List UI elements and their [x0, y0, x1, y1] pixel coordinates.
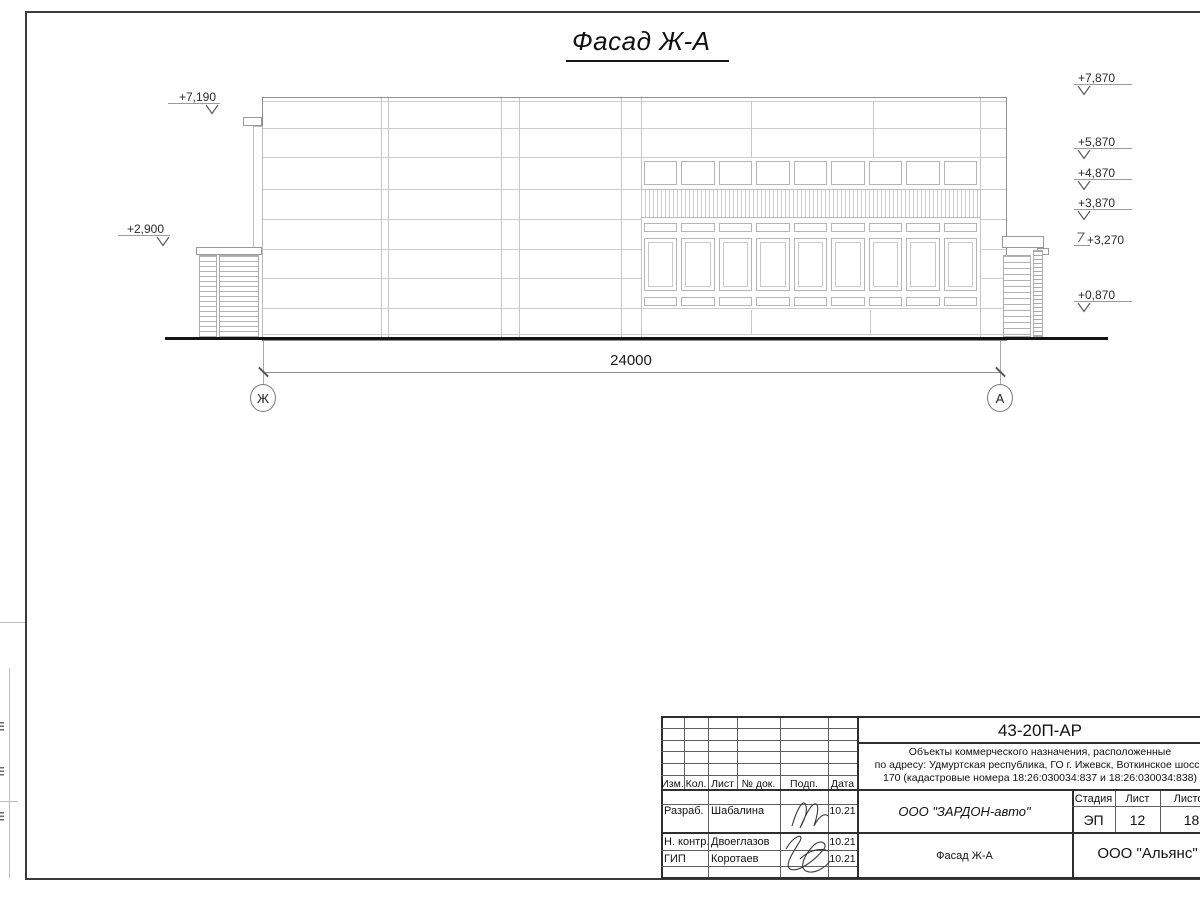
left-canopy: [243, 117, 262, 126]
line: [263, 249, 641, 250]
window-pane: [869, 238, 902, 291]
line: [263, 189, 641, 190]
tb-design-org: ООО "Альянс": [1072, 845, 1200, 862]
elevation-arrow-icon: [1077, 85, 1091, 96]
elevation-arrow-icon: [1077, 302, 1091, 313]
tb-signer-name: Коротаев: [711, 853, 759, 865]
elevation-underline: [1074, 245, 1090, 246]
line: [980, 249, 1006, 250]
window-pane: [719, 223, 752, 232]
window-pane: [719, 297, 752, 306]
line: [661, 740, 857, 741]
window-pane: [756, 161, 789, 185]
window-pane: [794, 161, 827, 185]
tb-signer-name: Шабалина: [711, 805, 764, 817]
line: [263, 219, 641, 220]
window-pane: [756, 238, 789, 291]
line: [661, 877, 1200, 879]
elevation-mark: +3,270: [1087, 233, 1124, 247]
tb-col-docnum: № док.: [737, 778, 780, 790]
window-pane: [831, 223, 864, 232]
tb-sheet-name: Фасад Ж-А: [857, 850, 1072, 862]
line: [661, 832, 1200, 834]
elevation-arrow-icon: [1077, 210, 1091, 221]
sheet-frame-left: [25, 11, 27, 880]
tb-sheets-header: Листов: [1160, 793, 1200, 805]
window-pane: [906, 223, 939, 232]
line: [519, 98, 520, 340]
margin-text-mark: [0, 812, 4, 821]
signature: [780, 831, 834, 877]
line: [980, 189, 1006, 190]
window-pane: [681, 297, 714, 306]
line: [661, 728, 857, 729]
tb-signer-role: Разраб.: [664, 805, 704, 817]
tb-signer-date: 10.21: [828, 805, 857, 817]
line: [857, 742, 1200, 744]
elevation-mark: +4,870: [1078, 166, 1115, 180]
tb-client-org: ООО "ЗАРДОН-авто": [857, 804, 1072, 819]
line: [980, 219, 1006, 220]
window-pane: [869, 223, 902, 232]
window-pane: [831, 297, 864, 306]
line: [661, 775, 857, 776]
curtain-wall-glazing: [641, 98, 980, 340]
line: [708, 717, 709, 878]
line: [980, 98, 981, 340]
left-louver-slats-narrow: [199, 255, 217, 337]
window-pane: [719, 238, 752, 291]
tb-sheet-header: Лист: [1115, 793, 1160, 805]
elevation-arrow-icon: [1077, 149, 1091, 160]
window-pane: [944, 297, 977, 306]
louver-band: [641, 189, 980, 218]
extension-line-left: [263, 341, 264, 385]
elevation-mark: +5,870: [1078, 135, 1115, 149]
ground-line: [165, 337, 1108, 340]
sheet-frame-top: [25, 11, 1200, 13]
tb-description-line3: 170 (кадастровые номера 18:26:030034:837…: [857, 772, 1200, 784]
window-row-upper: [641, 159, 980, 187]
tb-signer-role: ГИП: [664, 853, 686, 865]
elevation-arrow-icon: [156, 236, 170, 247]
tb-stage-header: Стадия: [1072, 793, 1115, 805]
line: [661, 751, 857, 752]
left-louver-cap: [196, 247, 262, 255]
window-pane: [794, 223, 827, 232]
line: [661, 763, 857, 764]
axis-bubble-left: Ж: [250, 384, 276, 412]
window-pane: [681, 223, 714, 232]
window-pane: [944, 238, 977, 291]
tb-sheets-value: 18: [1160, 812, 1200, 828]
tb-signer-name: Двоеглазов: [711, 836, 769, 848]
tb-sheet-value: 12: [1115, 812, 1160, 828]
line: [501, 98, 502, 340]
axis-label: Ж: [257, 391, 269, 406]
window-row-transom-top: [641, 221, 980, 234]
tb-signer-role: Н. контр.: [664, 836, 709, 848]
elevation-mark: +2,900: [114, 222, 164, 236]
window-pane: [869, 297, 902, 306]
right-louver-cap: [1002, 236, 1044, 248]
line: [661, 716, 1200, 718]
dimension-label: 24000: [560, 352, 702, 369]
window-pane: [906, 297, 939, 306]
window-pane: [644, 161, 677, 185]
margin-text-mark: [0, 722, 4, 731]
window-pane: [756, 223, 789, 232]
window-pane: [794, 297, 827, 306]
window-pane: [906, 161, 939, 185]
tb-description-line2: по адресу: Удмуртская республика, ГО г. …: [857, 759, 1200, 771]
view-title: Фасад Ж-А: [566, 26, 729, 62]
window-pane: [719, 161, 752, 185]
elevation-arrow-icon: [205, 104, 219, 115]
left-louver-slats-wide: [219, 255, 259, 337]
axis-bubble-right: А: [987, 384, 1013, 412]
signature: [788, 794, 830, 834]
extension-line-right: [1000, 341, 1001, 385]
window-pane: [644, 223, 677, 232]
margin-divider: [0, 801, 18, 802]
tb-col-podp: Подп.: [780, 778, 828, 790]
right-louver-ladder: [1033, 250, 1043, 337]
window-pane: [831, 161, 864, 185]
elevation-mark: +7,870: [1078, 71, 1115, 85]
window-pane: [644, 297, 677, 306]
window-pane: [794, 238, 827, 291]
tb-col-kol: Кол.: [684, 778, 708, 790]
tb-col-date: Дата: [828, 778, 857, 790]
tb-col-izm: Изм.: [661, 778, 684, 790]
tb-description-line1: Объекты коммерческого назначения, распол…: [857, 746, 1200, 758]
line: [381, 98, 382, 340]
window-pane: [906, 238, 939, 291]
window-pane: [944, 161, 977, 185]
window-row-main: [641, 236, 980, 293]
window-row-transom-bottom: [641, 295, 980, 308]
line: [1072, 806, 1200, 807]
dimension-line: [263, 372, 1000, 373]
margin-text-mark: [0, 767, 4, 776]
elevation-mark: +0,870: [1078, 288, 1115, 302]
line: [661, 717, 663, 878]
window-pane: [681, 238, 714, 291]
margin-divider: [0, 622, 25, 623]
drawing-sheet: { "sheet": { "view_title": "Фасад Ж-А", …: [0, 0, 1200, 900]
window-pane: [869, 161, 902, 185]
tb-stage-value: ЭП: [1072, 812, 1115, 828]
margin-column-line: [9, 668, 10, 878]
tb-document-code: 43-20П-АР: [857, 721, 1200, 741]
elevation-mark: +3,870: [1078, 196, 1115, 210]
axis-label: А: [996, 391, 1005, 406]
tb-col-list: Лист: [708, 778, 737, 790]
line: [388, 98, 389, 340]
window-pane: [644, 238, 677, 291]
right-louver-slats: [1003, 255, 1031, 337]
line: [621, 98, 622, 340]
elevation-arrow-icon: [1077, 180, 1091, 191]
building-facade: [262, 97, 1007, 341]
window-pane: [681, 161, 714, 185]
window-pane: [831, 238, 864, 291]
window-pane: [944, 223, 977, 232]
line: [263, 278, 641, 279]
elevation-mark: +7,190: [166, 90, 216, 104]
window-pane: [756, 297, 789, 306]
